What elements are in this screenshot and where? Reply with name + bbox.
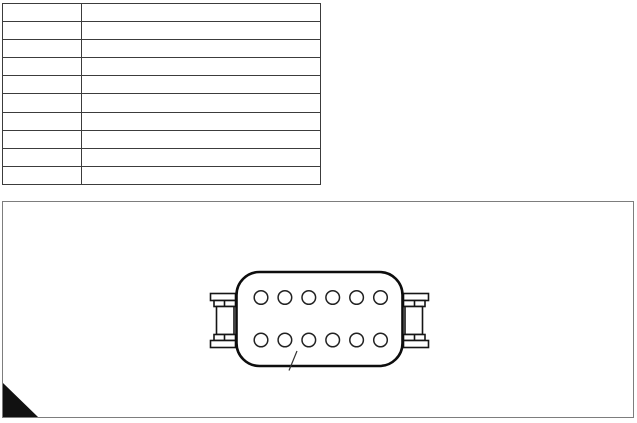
pin-hole bbox=[326, 333, 340, 347]
pin-hole bbox=[326, 291, 340, 305]
pin-hole bbox=[254, 291, 268, 305]
pin-hole bbox=[278, 333, 292, 347]
pin-hole bbox=[254, 333, 268, 347]
fold-marker bbox=[3, 383, 38, 417]
mounting-clip-left-icon bbox=[211, 294, 236, 348]
connector-diagram bbox=[0, 0, 637, 423]
pin-hole bbox=[302, 333, 316, 347]
pin-hole bbox=[374, 333, 388, 347]
pin-hole bbox=[302, 291, 316, 305]
connector-body bbox=[237, 272, 403, 366]
pin-hole bbox=[278, 291, 292, 305]
pin-hole bbox=[374, 291, 388, 305]
pin-hole bbox=[350, 291, 364, 305]
pin-hole bbox=[350, 333, 364, 347]
page-canvas bbox=[0, 0, 637, 423]
mounting-clip-right-icon bbox=[404, 294, 429, 348]
